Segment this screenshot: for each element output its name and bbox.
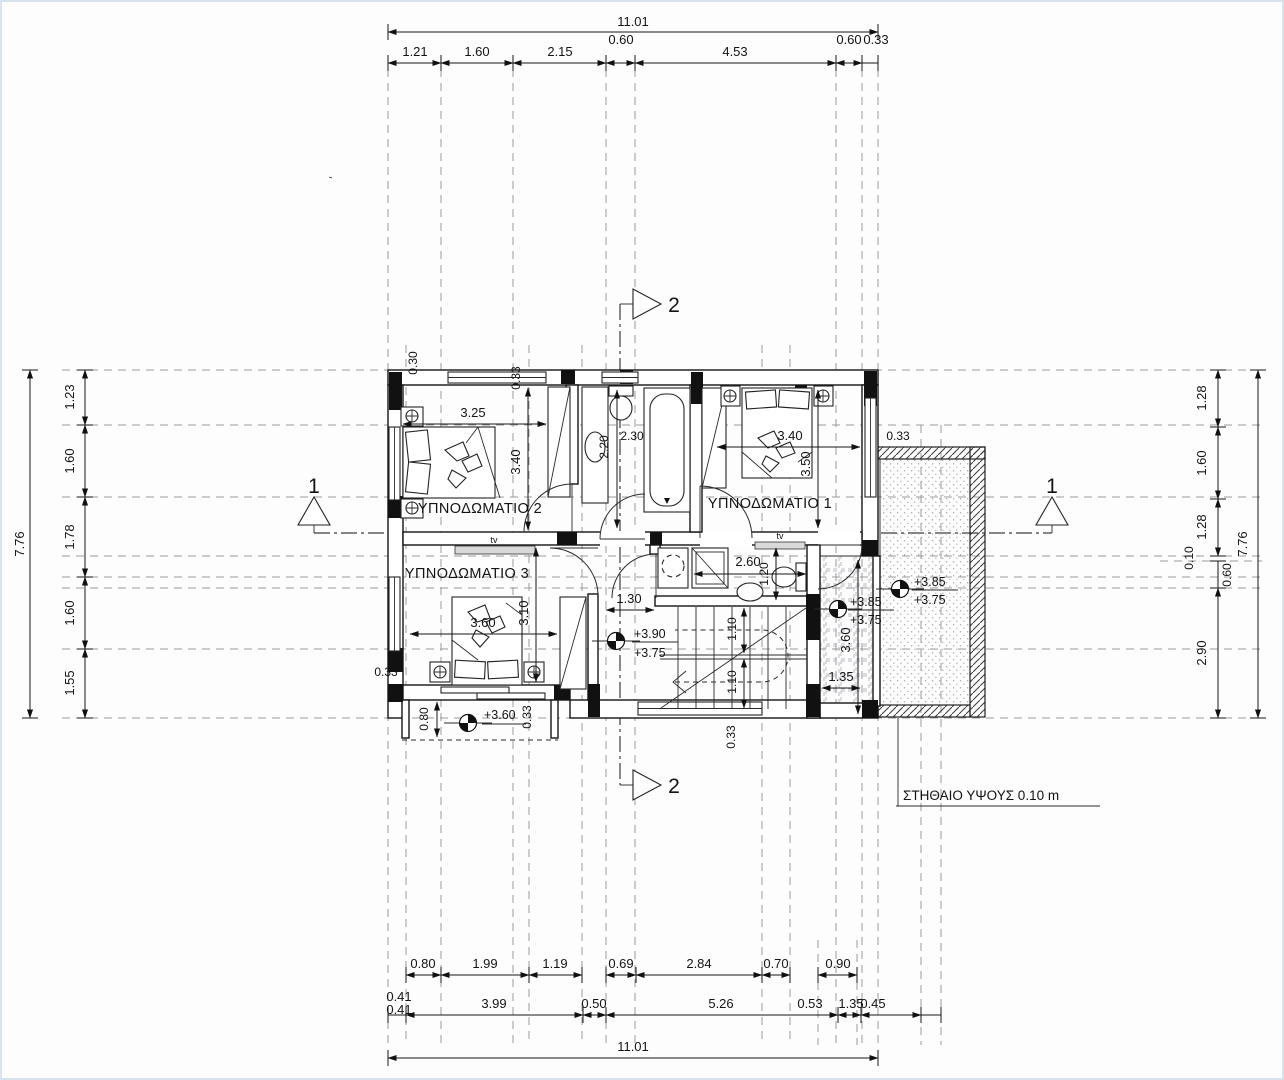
dim-label: 1.60 xyxy=(62,600,77,625)
section-arrow-2-bottom xyxy=(633,770,661,800)
dim-label: 1.60 xyxy=(1194,450,1209,475)
dim-top: 11.01 1.21 1.60 2.15 0.60 4.53 0.60 0.33 xyxy=(388,14,889,71)
level-value: +3.85 xyxy=(850,595,882,609)
parapet-note-text: ΣΤΗΘΑΙΟ ΥΨΟΥΣ 0.10 m xyxy=(903,788,1059,803)
washbasin-cabinet xyxy=(658,548,688,588)
level-value: +3.60 xyxy=(484,708,516,722)
bathtub xyxy=(644,388,690,512)
window xyxy=(389,427,400,500)
dim-label: 4.53 xyxy=(722,44,747,59)
dim-label: 1.35 xyxy=(828,669,853,684)
dim-label: 2.20 xyxy=(597,435,611,459)
dim-label: 0.10 xyxy=(1182,546,1196,570)
dim-label: 3.40 xyxy=(777,428,802,443)
dim-label: 1.60 xyxy=(464,44,489,59)
dim-label: 0.41 xyxy=(386,1002,411,1017)
section-label: 2 xyxy=(668,775,680,798)
shower xyxy=(692,548,728,588)
balcony-parapet-bottom xyxy=(878,705,970,717)
dim-label: 0.70 xyxy=(763,956,788,971)
door xyxy=(550,548,598,596)
small-balcony-wall-right xyxy=(551,700,558,738)
dim-label: 0.33 xyxy=(520,705,534,729)
level-marker xyxy=(592,633,640,650)
dim-label: 0.30 xyxy=(406,351,420,375)
closet xyxy=(548,387,570,497)
level-value: +3.85 xyxy=(914,575,946,589)
dim-label: 0.80 xyxy=(410,956,435,971)
dim-label: 1.78 xyxy=(62,524,77,549)
dim-label: 3.60 xyxy=(470,615,495,630)
dim-label: 1.28 xyxy=(1194,514,1209,539)
level-value: +3.75 xyxy=(634,646,666,660)
toilet-icon xyxy=(772,563,806,591)
tv-label: tv xyxy=(490,535,498,545)
dim-label: 0.53 xyxy=(797,996,822,1011)
floor-plan-drawing: tv tv 11.01 1.21 1.60 2.15 0.60 4.53 0.6… xyxy=(0,0,1284,1080)
dim-label: 7.76 xyxy=(12,531,27,556)
dim-right: 1.28 1.60 1.28 0.10 0.60 2.90 7.76 xyxy=(1182,370,1266,718)
dim-label: 0.60 xyxy=(1220,563,1234,587)
dim-label: 11.01 xyxy=(617,14,649,29)
section-arrow-2-top xyxy=(633,289,661,319)
dim-label: 0.50 xyxy=(581,996,606,1011)
dim-label: 5.26 xyxy=(708,996,733,1011)
balcony-parapet-right xyxy=(970,447,985,717)
dim-label: 3.99 xyxy=(481,996,506,1011)
section-arrow-1-right xyxy=(1036,497,1068,525)
toilet-icon xyxy=(609,386,633,420)
door xyxy=(700,486,752,538)
floor-plan-page: tv tv 11.01 1.21 1.60 2.15 0.60 4.53 0.6… xyxy=(0,0,1284,1080)
dim-label: 1.19 xyxy=(542,956,567,971)
section-label: 1 xyxy=(308,475,320,498)
room-label-bedroom-3: ΥΠΝΟΔΩΜΑΤΙΟ 3 xyxy=(405,566,529,582)
dim-label: 0.90 xyxy=(825,956,850,971)
dim-label: 1.21 xyxy=(402,44,427,59)
balcony-parapet-top xyxy=(878,447,985,459)
dim-label: 0.33 xyxy=(509,366,523,390)
room-label-bedroom-2: ΥΠΝΟΔΩΜΑΤΙΟ 2 xyxy=(418,501,542,517)
dim-label: 3.50 xyxy=(798,451,813,476)
dim-label: 3.40 xyxy=(508,449,523,474)
dim-label: 3.10 xyxy=(516,600,531,625)
dim-label: 1.55 xyxy=(62,670,77,695)
room-label-bedroom-1: ΥΠΝΟΔΩΜΑΤΙΟ 1 xyxy=(708,496,832,512)
tv-label: tv xyxy=(776,531,784,541)
dim-label: 1.30 xyxy=(616,591,641,606)
window xyxy=(865,398,876,497)
section-arrow-1-left xyxy=(298,497,330,525)
dim-label: 1.28 xyxy=(1194,385,1209,410)
dim-label: 2.90 xyxy=(1194,640,1209,665)
dim-label: 0.69 xyxy=(608,956,633,971)
dim-label: 7.76 xyxy=(1235,531,1250,556)
closet xyxy=(560,597,586,689)
dim-label: 2.15 xyxy=(547,44,572,59)
dim-label: 0.33 xyxy=(374,665,398,679)
dim-bottom: 0.80 1.99 1.19 0.69 2.84 0.70 0.90 0.41 … xyxy=(386,956,941,1066)
small-balcony-wall-left xyxy=(402,700,409,738)
dim-label: 1.60 xyxy=(62,448,77,473)
dim-label: 0.33 xyxy=(863,32,888,47)
dim-label: 0.60 xyxy=(836,32,861,47)
dim-label: 3.25 xyxy=(460,405,485,420)
section-label: 2 xyxy=(668,294,680,317)
dim-label: 1.10 xyxy=(725,617,739,641)
window xyxy=(448,372,546,383)
dim-label: 2.84 xyxy=(686,956,711,971)
dim-label: 1.23 xyxy=(62,384,77,409)
dim-label: 1.10 xyxy=(725,670,739,694)
dim-label: 0.33 xyxy=(724,725,738,749)
dim-left: 7.76 1.23 1.60 1.78 1.60 1.55 xyxy=(12,370,93,718)
dim-label: 0.33 xyxy=(886,429,910,443)
level-value: +3.75 xyxy=(914,593,946,607)
dim-label: 3.60 xyxy=(838,627,853,652)
dim-label: 0.60 xyxy=(608,32,633,47)
dim-label: 0.45 xyxy=(860,996,885,1011)
dim-label: 1.20 xyxy=(757,562,771,586)
section-label: 1 xyxy=(1046,475,1058,498)
stray-mark xyxy=(329,177,332,178)
dim-label: 0.80 xyxy=(417,707,431,731)
dim-label: 2.30 xyxy=(620,429,644,443)
dim-label: 1.99 xyxy=(472,956,497,971)
level-value: +3.75 xyxy=(850,613,882,627)
dim-label: 11.01 xyxy=(617,1039,649,1054)
level-value: +3.90 xyxy=(634,627,666,641)
window xyxy=(638,702,762,715)
parapet-note: ΣΤΗΘΑΙΟ ΥΨΟΥΣ 0.10 m xyxy=(896,718,1100,806)
window xyxy=(389,577,400,651)
window xyxy=(602,372,638,383)
